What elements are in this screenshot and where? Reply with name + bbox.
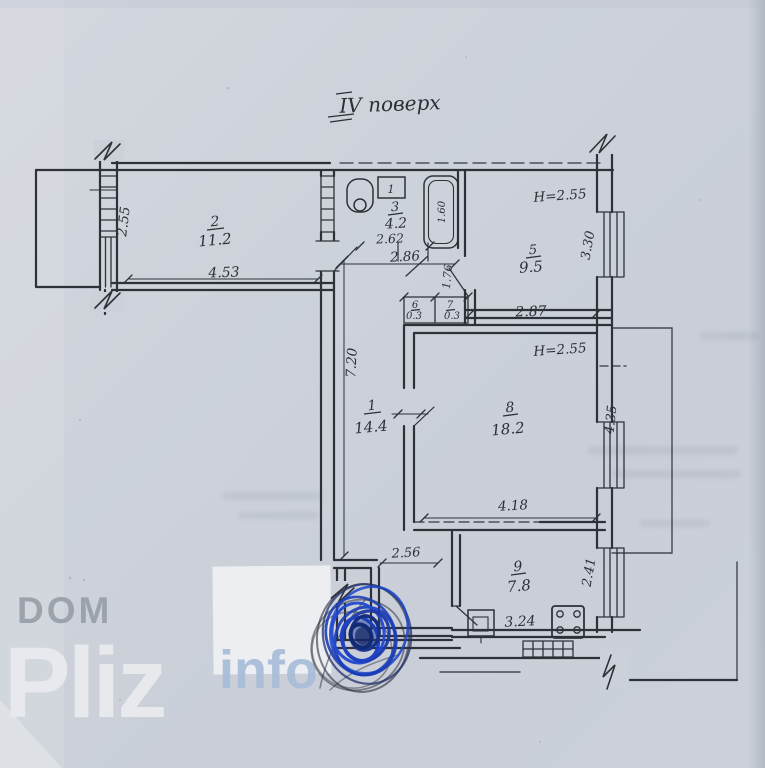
fixture-mark-label: 1 xyxy=(388,183,395,196)
room-1-area: 14.4 xyxy=(353,417,388,438)
dim-passage-width: 1.76 xyxy=(440,264,455,290)
room-8-number: 8 xyxy=(505,400,515,417)
room-7-number: 7 xyxy=(447,300,454,311)
toilet-fixture xyxy=(347,179,373,212)
room-7-area: 0.3 xyxy=(444,311,460,322)
toilet-bowl xyxy=(354,199,366,211)
room-1-number: 1 xyxy=(367,398,377,415)
dim-hall-top-width: 2.86 xyxy=(389,248,421,266)
room-5-area: 9.5 xyxy=(518,257,543,277)
dim-entry-width: 2.56 xyxy=(390,545,421,562)
dim-room5-width: 2.87 xyxy=(514,303,547,320)
stove-fixture xyxy=(552,606,584,638)
room-8-area: 18.2 xyxy=(490,419,525,440)
watermark-info: info xyxy=(219,640,318,700)
dim-room2-width: 4.53 xyxy=(207,264,240,281)
watermark-dom: DOM xyxy=(17,590,112,631)
dim-kitchen-window: 2.41 xyxy=(579,557,599,589)
dim-bath-width: 2.62 xyxy=(375,231,404,247)
plan-labels: IV поверх 2 11.2 3 4.2 5 9.5 6 0.3 7 0.3… xyxy=(114,90,620,631)
dim-hall-length: 7.20 xyxy=(343,347,361,378)
room-3-number: 3 xyxy=(390,200,399,215)
kitchen-sink-fixture xyxy=(468,610,494,636)
dim-bathtub: 1.60 xyxy=(437,200,448,223)
room-6-number: 6 xyxy=(412,300,419,311)
dim-room8-height: H=2.55 xyxy=(532,340,587,360)
room-6-area: 0.3 xyxy=(406,311,422,322)
scanned-floor-plan-page: IV поверх 2 11.2 3 4.2 5 9.5 6 0.3 7 0.3… xyxy=(0,0,765,768)
dim-room8-window: 4.35 xyxy=(602,404,620,435)
dim-balcony-left: 2.55 xyxy=(114,206,134,239)
room-5-number: 5 xyxy=(528,243,537,259)
dim-room5-window: 3.30 xyxy=(579,230,599,261)
room-9-number: 9 xyxy=(513,559,523,576)
room-9-area: 7.8 xyxy=(506,576,531,596)
page-title: IV поверх xyxy=(338,90,441,118)
room-2-area: 11.2 xyxy=(197,230,232,251)
room-2-number: 2 xyxy=(209,214,220,231)
dim-room8-width: 4.18 xyxy=(497,497,529,515)
wall-break-symbols xyxy=(90,132,628,689)
floor-plan-drawing: IV поверх 2 11.2 3 4.2 5 9.5 6 0.3 7 0.3… xyxy=(0,0,765,768)
dim-kitchen-width: 3.24 xyxy=(504,613,536,631)
watermark-pliz: Pliz xyxy=(4,627,164,739)
watermark: DOM Pliz info xyxy=(4,565,332,739)
dim-room5-height: H=2.55 xyxy=(532,186,587,206)
